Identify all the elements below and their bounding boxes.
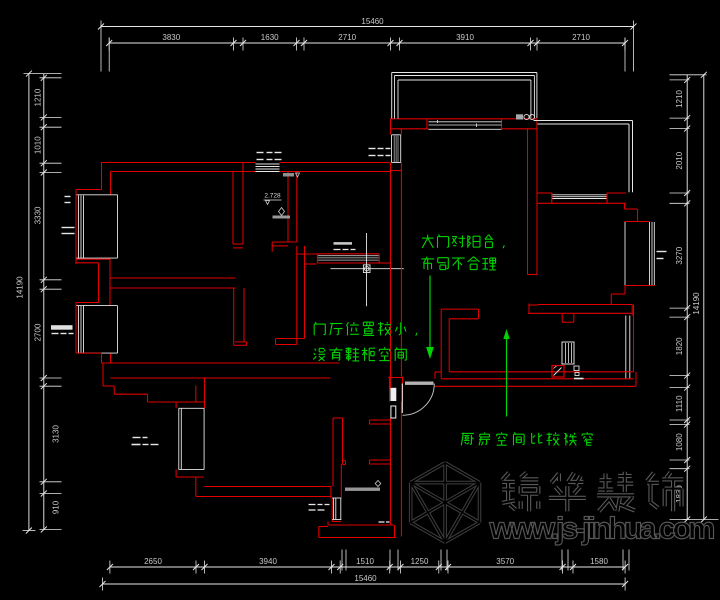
- svg-text:2710: 2710: [572, 33, 590, 42]
- svg-text:910: 910: [52, 500, 61, 514]
- svg-text:1820: 1820: [675, 337, 684, 355]
- svg-text:1110: 1110: [675, 395, 684, 412]
- svg-text:1630: 1630: [261, 33, 279, 42]
- svg-text:3130: 3130: [52, 425, 61, 443]
- svg-text:1510: 1510: [356, 557, 374, 566]
- svg-text:3910: 3910: [456, 33, 474, 42]
- svg-text:1010: 1010: [34, 136, 43, 154]
- svg-text:2700: 2700: [34, 323, 43, 341]
- svg-text:3940: 3940: [259, 557, 277, 566]
- svg-text:2710: 2710: [338, 33, 356, 42]
- svg-text:www.js-jinhua.com: www.js-jinhua.com: [489, 511, 716, 546]
- svg-text:2650: 2650: [144, 557, 162, 566]
- svg-text:2010: 2010: [675, 151, 684, 169]
- svg-text:1080: 1080: [675, 433, 684, 451]
- svg-text:3270: 3270: [675, 246, 684, 264]
- svg-text:3570: 3570: [496, 557, 514, 566]
- svg-text:14190: 14190: [692, 292, 701, 315]
- svg-text:1210: 1210: [675, 90, 684, 108]
- svg-text:14190: 14190: [16, 276, 25, 299]
- svg-text:2.728: 2.728: [264, 193, 281, 200]
- svg-text:3830: 3830: [162, 33, 180, 42]
- svg-text:15460: 15460: [361, 17, 384, 26]
- svg-text:1250: 1250: [411, 557, 429, 566]
- svg-text:3330: 3330: [34, 206, 43, 224]
- svg-text:1210: 1210: [34, 88, 43, 106]
- svg-text:1580: 1580: [590, 557, 608, 566]
- svg-text:15460: 15460: [354, 574, 377, 583]
